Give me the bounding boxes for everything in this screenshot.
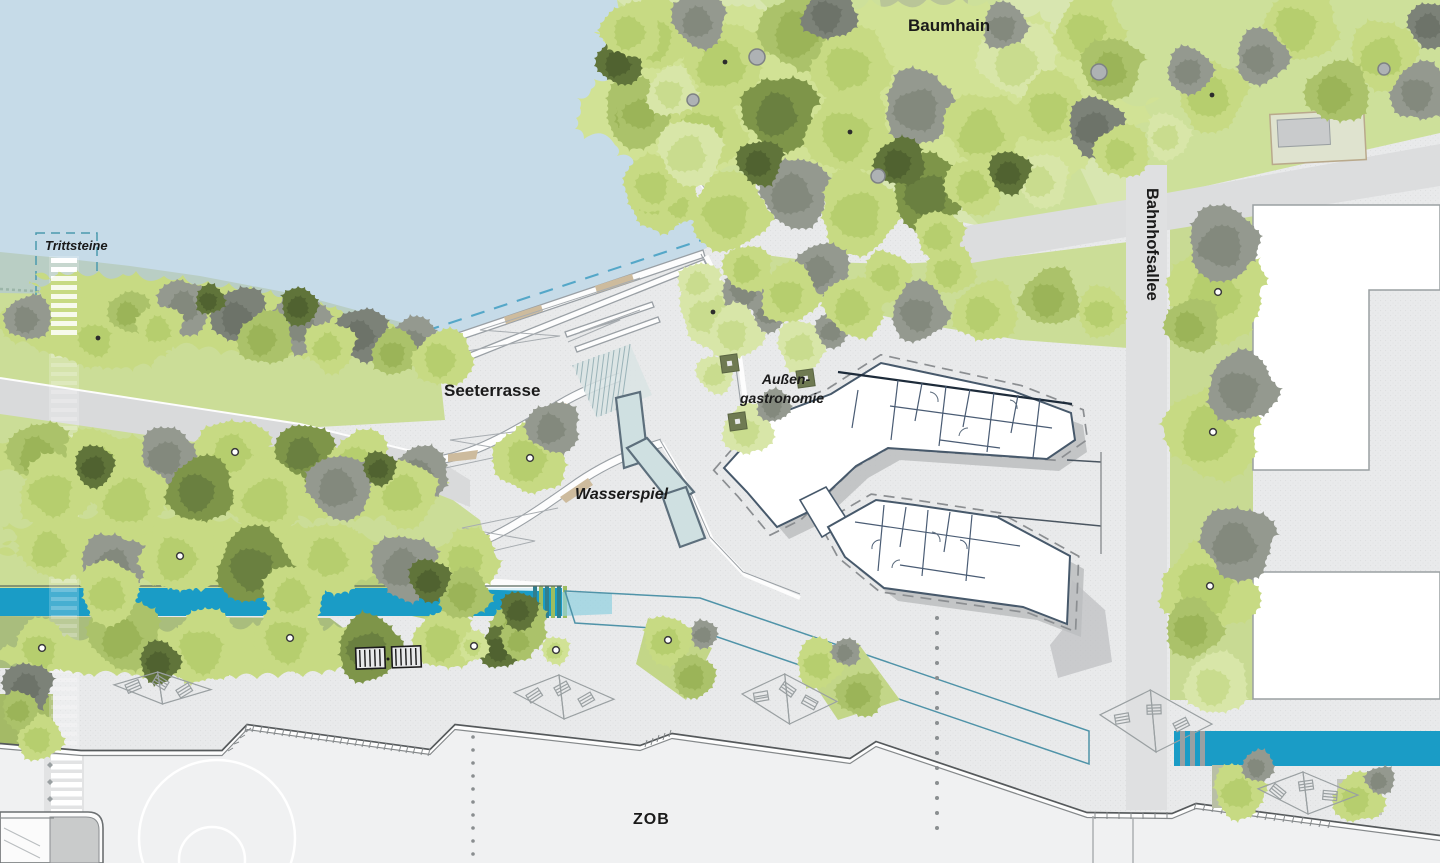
svg-text:Bahnhofsallee: Bahnhofsallee xyxy=(1143,188,1161,301)
svg-text:Trittsteine: Trittsteine xyxy=(45,238,108,253)
svg-text:Baumhain: Baumhain xyxy=(908,16,990,35)
svg-text:Wasserspiel: Wasserspiel xyxy=(575,486,669,503)
svg-text:Außen-: Außen- xyxy=(761,371,811,387)
svg-text:gastronomie: gastronomie xyxy=(739,390,824,406)
svg-text:ZOB: ZOB xyxy=(633,811,670,828)
svg-text:Seeterrasse: Seeterrasse xyxy=(444,381,540,400)
